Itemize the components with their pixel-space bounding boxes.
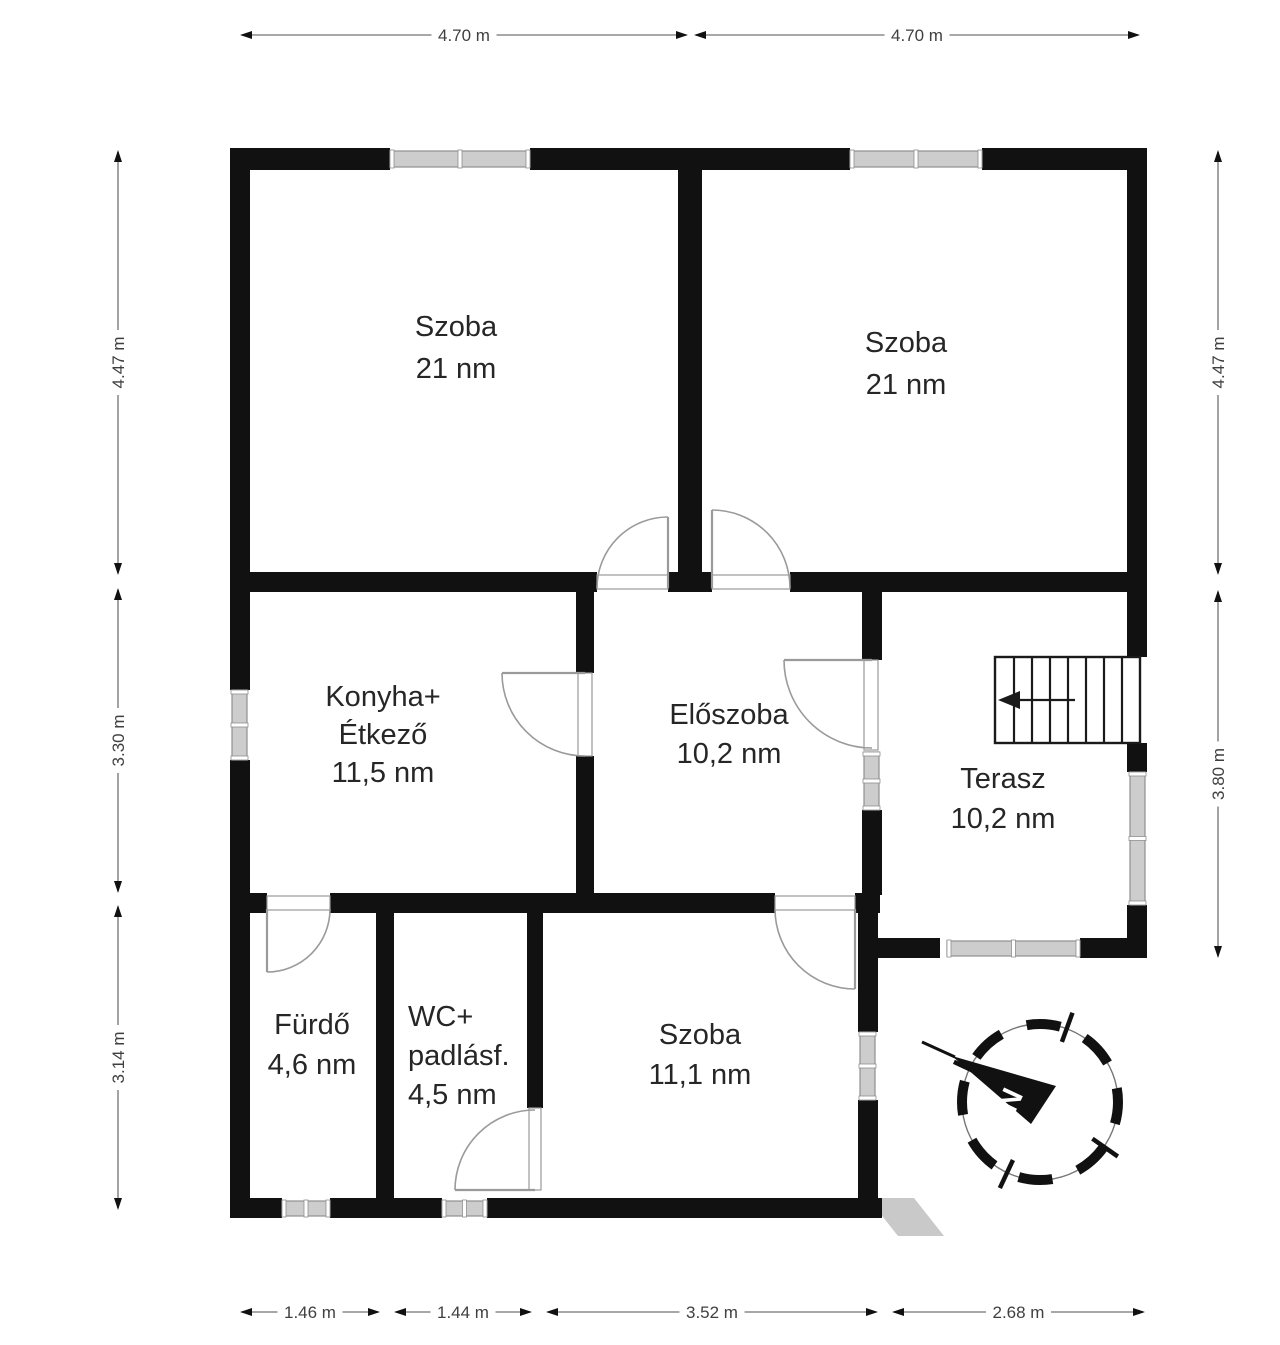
- svg-text:4.70 m: 4.70 m: [891, 26, 943, 45]
- dimension-top-0: 4.70 m: [240, 25, 688, 45]
- room-label-line: 10,2 nm: [677, 738, 782, 770]
- svg-text:1.44 m: 1.44 m: [437, 1303, 489, 1322]
- wall-segment: [982, 148, 1147, 170]
- room-label-line: padlásf.: [408, 1040, 510, 1072]
- svg-text:3.14 m: 3.14 m: [109, 1032, 128, 1084]
- wall-segment: [862, 810, 882, 895]
- svg-text:3.30 m: 3.30 m: [109, 715, 128, 767]
- dimension-left-1: 3.30 m: [108, 588, 128, 893]
- room-label-line: 11,5 nm: [332, 757, 435, 789]
- floor-plan-page: Szoba21 nmSzoba21 nmKonyha+Étkező11,5 nm…: [0, 0, 1280, 1345]
- wall-segment: [668, 572, 712, 592]
- door-furdo-icon: [267, 896, 330, 972]
- room-label-konyha: Konyha+Étkező11,5 nm: [325, 681, 440, 789]
- room-label-line: 4,6 nm: [268, 1049, 357, 1081]
- window-icon: [863, 752, 880, 810]
- room-label-eloszoba: Előszoba10,2 nm: [669, 699, 789, 770]
- door-szoba-2-icon: [712, 510, 790, 589]
- wall-segment: [790, 572, 1147, 592]
- room-label-line: Konyha+: [325, 681, 440, 713]
- wall-segment: [527, 913, 543, 1108]
- wall-segment: [678, 170, 702, 572]
- room-label-szoba-3: Szoba11,1 nm: [649, 1019, 752, 1091]
- wall-segment: [858, 893, 878, 1032]
- room-label-line: Szoba: [659, 1019, 742, 1051]
- wall-segment: [330, 893, 775, 913]
- room-label-line: Étkező: [339, 718, 428, 751]
- dimension-bottom-3: 2.68 m: [892, 1302, 1145, 1322]
- door-eloszoba-icon: [784, 660, 878, 750]
- svg-text:4.47 m: 4.47 m: [109, 337, 128, 389]
- wall-segment: [862, 592, 882, 660]
- door-szoba-3-icon: [775, 896, 855, 989]
- room-label-line: 21 nm: [416, 353, 497, 385]
- dimension-right-1: 3.80 m: [1208, 590, 1228, 958]
- wall-segment: [230, 148, 390, 170]
- wall-segment: [1080, 938, 1147, 958]
- wall-segment: [576, 756, 594, 893]
- wall-segment: [576, 592, 594, 673]
- svg-text:3.52 m: 3.52 m: [686, 1303, 738, 1322]
- dimension-bottom-2: 3.52 m: [546, 1302, 878, 1322]
- room-label-line: 10,2 nm: [951, 803, 1056, 835]
- stairs-icon: [995, 657, 1140, 743]
- door-wc-icon: [455, 1108, 541, 1190]
- room-label-wc: WC+padlásf.4,5 nm: [408, 1001, 510, 1111]
- dimension-right-0: 4.47 m: [1208, 150, 1228, 575]
- window-icon: [442, 1200, 487, 1217]
- room-label-furdo: Fürdő4,6 nm: [268, 1009, 357, 1081]
- svg-text:4.70 m: 4.70 m: [438, 26, 490, 45]
- wall-segment: [230, 760, 250, 1218]
- wall-segment: [230, 1198, 282, 1218]
- dimension-left-2: 3.14 m: [108, 905, 128, 1210]
- dimension-top-1: 4.70 m: [694, 25, 1140, 45]
- wall-segment: [877, 938, 940, 958]
- window-icon: [282, 1200, 330, 1217]
- door-konyha-icon: [502, 673, 592, 756]
- dimension-bottom-1: 1.44 m: [394, 1302, 532, 1322]
- room-label-line: Előszoba: [669, 699, 789, 731]
- room-label-terasz: Terasz10,2 nm: [951, 763, 1056, 835]
- svg-text:2.68 m: 2.68 m: [993, 1303, 1045, 1322]
- dimension-left-0: 4.47 m: [108, 150, 128, 575]
- wall-segment: [1127, 588, 1147, 657]
- wall-segment: [330, 1198, 442, 1218]
- room-label-line: Terasz: [960, 763, 1045, 795]
- floor-plan-drawing: Szoba21 nmSzoba21 nmKonyha+Étkező11,5 nm…: [0, 0, 1280, 1345]
- svg-text:3.80 m: 3.80 m: [1209, 748, 1228, 800]
- wall-segment: [530, 148, 850, 170]
- window-icon: [947, 940, 1080, 957]
- window-icon: [1129, 772, 1146, 905]
- wall-segment: [230, 893, 267, 913]
- room-label-line: WC+: [408, 1001, 473, 1033]
- wall-segment: [376, 913, 394, 1198]
- room-label-line: 21 nm: [866, 369, 947, 401]
- window-icon: [231, 690, 248, 760]
- room-label-szoba-1: Szoba21 nm: [415, 311, 498, 385]
- svg-text:1.46 m: 1.46 m: [284, 1303, 336, 1322]
- wall-segment: [230, 572, 597, 592]
- window-icon: [859, 1032, 876, 1100]
- room-label-line: Szoba: [415, 311, 498, 343]
- dimension-bottom-0: 1.46 m: [240, 1302, 380, 1322]
- room-label-line: Szoba: [865, 327, 948, 359]
- wall-segment: [230, 148, 250, 690]
- window-icon: [850, 150, 982, 168]
- wall-segment: [1127, 148, 1147, 588]
- wall-segment: [1127, 743, 1147, 772]
- door-szoba-1-icon: [597, 517, 668, 589]
- room-label-line: Fürdő: [274, 1009, 350, 1041]
- compass-icon: N: [922, 1013, 1118, 1188]
- room-label-line: 11,1 nm: [649, 1059, 752, 1091]
- room-label-szoba-2: Szoba21 nm: [865, 327, 948, 401]
- doors-layer: [267, 510, 878, 1190]
- wall-segment: [487, 1198, 882, 1218]
- window-icon: [390, 150, 530, 168]
- svg-text:4.47 m: 4.47 m: [1209, 337, 1228, 389]
- room-label-line: 4,5 nm: [408, 1079, 497, 1111]
